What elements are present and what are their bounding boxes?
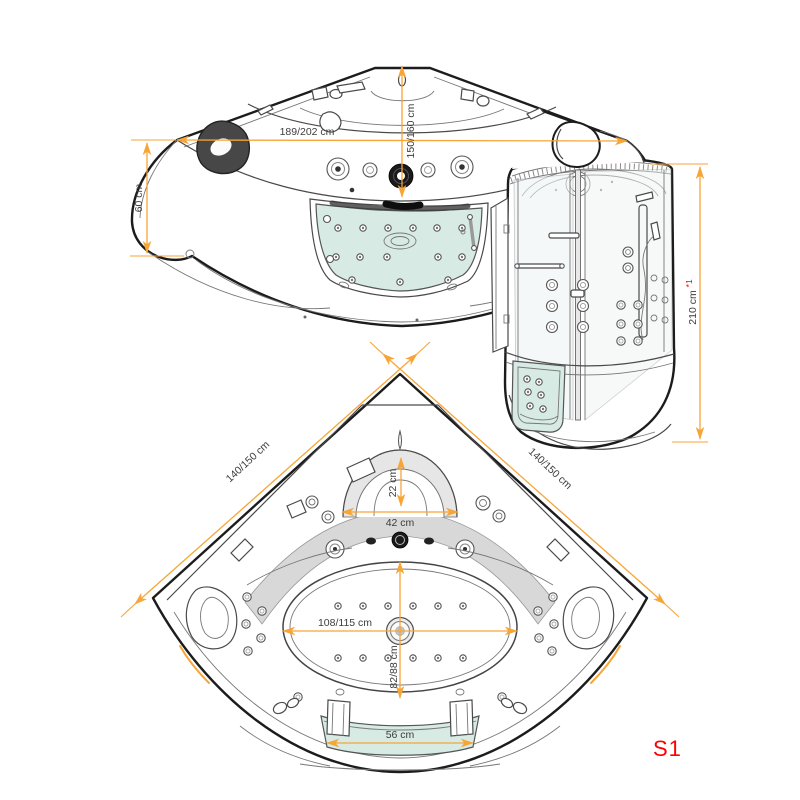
variant-code-label: S1 [653, 736, 682, 761]
dim-front-glass-width-label: 56 cm [386, 729, 415, 741]
dim-corner-depth-label: 150/160 cm [405, 103, 417, 158]
cabin-side-view-drawing [491, 158, 674, 449]
dim-cabin-height-footnote: *1 [684, 279, 694, 287]
front-view-overlap [512, 108, 644, 169]
dim-cabin-height-label: 210 cm*1 [684, 279, 699, 325]
dim-headrest-depth-label: 22 cm [387, 468, 399, 497]
headrest-left [197, 121, 249, 173]
bathtub-technical-drawing: 189/202 cm 150/160 cm 60 cm 210 cm*1 140… [0, 0, 800, 800]
dim-headrest-width-label: 42 cm [386, 517, 415, 529]
cabin-open-door [491, 198, 509, 352]
dim-left-side-label: 140/150 cm [224, 439, 272, 485]
dim-overall-width-label: 189/202 cm [280, 126, 335, 138]
dim-right-side-label: 140/150 cm [526, 446, 574, 492]
dim-basin-depth-label: 82/88 cm [388, 645, 400, 688]
dim-basin-width-label: 108/115 cm [318, 617, 372, 629]
dim-apron-height-label: 60 cm [133, 183, 145, 212]
cabin-base-glass [512, 361, 565, 432]
